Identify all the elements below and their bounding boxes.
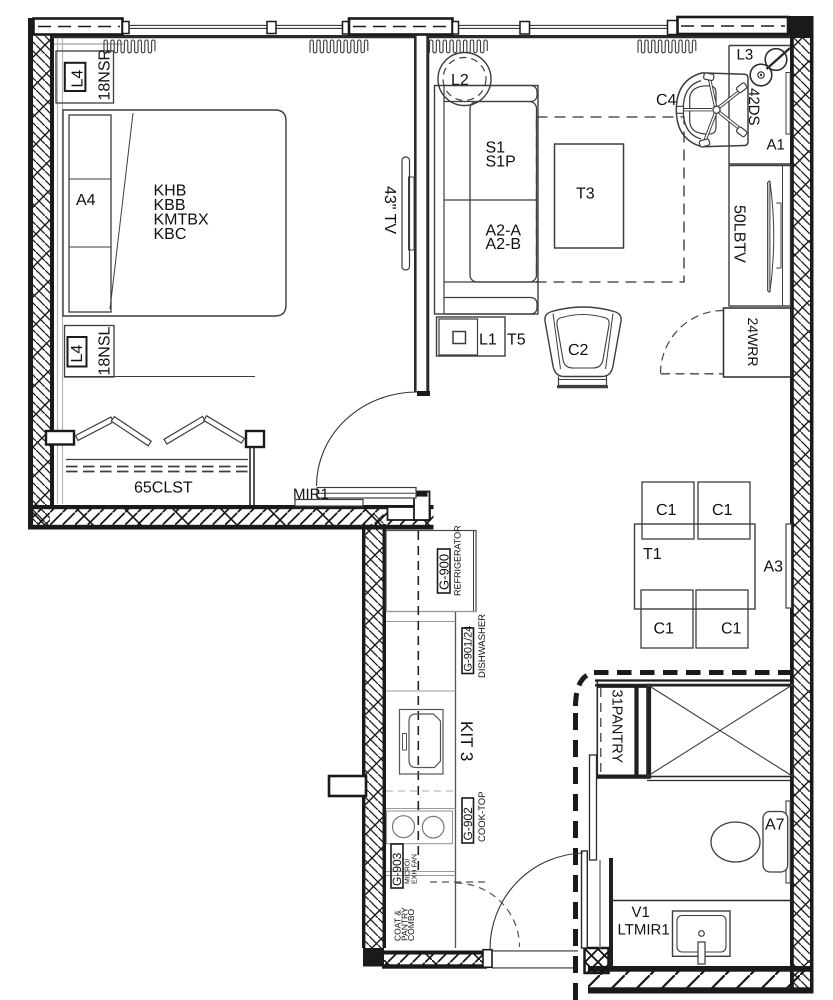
svg-text:A2-B: A2-B bbox=[486, 236, 522, 253]
svg-text:C2: C2 bbox=[568, 342, 589, 359]
svg-text:COMBO: COMBO bbox=[406, 909, 416, 942]
svg-text:18NSL: 18NSL bbox=[97, 326, 114, 375]
svg-text:G-902: G-902 bbox=[461, 807, 475, 841]
svg-text:COOK-TOP: COOK-TOP bbox=[477, 792, 488, 843]
svg-text:C1: C1 bbox=[654, 621, 675, 638]
svg-text:L3: L3 bbox=[737, 47, 754, 64]
svg-text:G-901/24: G-901/24 bbox=[463, 626, 475, 672]
svg-text:LTMIR1: LTMIR1 bbox=[618, 922, 670, 939]
svg-text:T3: T3 bbox=[576, 186, 595, 203]
svg-text:DISHWASHER: DISHWASHER bbox=[477, 614, 488, 678]
svg-text:KBC: KBC bbox=[154, 226, 187, 243]
svg-text:A1: A1 bbox=[767, 137, 785, 154]
svg-text:C1: C1 bbox=[721, 621, 742, 638]
svg-text:V1: V1 bbox=[632, 904, 650, 921]
svg-text:MICRO/: MICRO/ bbox=[404, 859, 412, 884]
svg-text:65CLST: 65CLST bbox=[134, 480, 193, 497]
svg-text:C4: C4 bbox=[656, 92, 677, 109]
svg-text:50LBTV: 50LBTV bbox=[731, 205, 748, 263]
svg-text:A3: A3 bbox=[764, 559, 784, 576]
svg-text:L4: L4 bbox=[70, 70, 87, 88]
svg-text:A4: A4 bbox=[76, 192, 96, 209]
svg-text:24WRR: 24WRR bbox=[745, 318, 761, 367]
svg-text:G-903: G-903 bbox=[390, 852, 404, 886]
svg-text:43" TV: 43" TV bbox=[381, 186, 398, 234]
svg-text:MIR1: MIR1 bbox=[293, 486, 329, 503]
svg-text:T5: T5 bbox=[507, 332, 526, 349]
svg-text:L4: L4 bbox=[69, 345, 86, 363]
svg-text:L2: L2 bbox=[451, 72, 469, 89]
svg-text:KIT 3: KIT 3 bbox=[457, 721, 476, 761]
svg-text:G-900: G-900 bbox=[437, 554, 452, 590]
svg-text:REFRIGERATOR: REFRIGERATOR bbox=[453, 525, 463, 596]
svg-text:S1P: S1P bbox=[486, 154, 516, 171]
svg-text:C1: C1 bbox=[656, 502, 677, 519]
svg-text:L1: L1 bbox=[479, 332, 497, 349]
svg-text:T1: T1 bbox=[643, 546, 662, 563]
svg-text:C1: C1 bbox=[712, 502, 733, 519]
svg-text:18NSR: 18NSR bbox=[97, 49, 114, 101]
svg-text:42DS: 42DS bbox=[745, 88, 762, 126]
svg-text:A7: A7 bbox=[765, 817, 785, 834]
svg-text:EXH FAN: EXH FAN bbox=[412, 854, 419, 884]
svg-text:31PANTRY: 31PANTRY bbox=[609, 690, 625, 764]
